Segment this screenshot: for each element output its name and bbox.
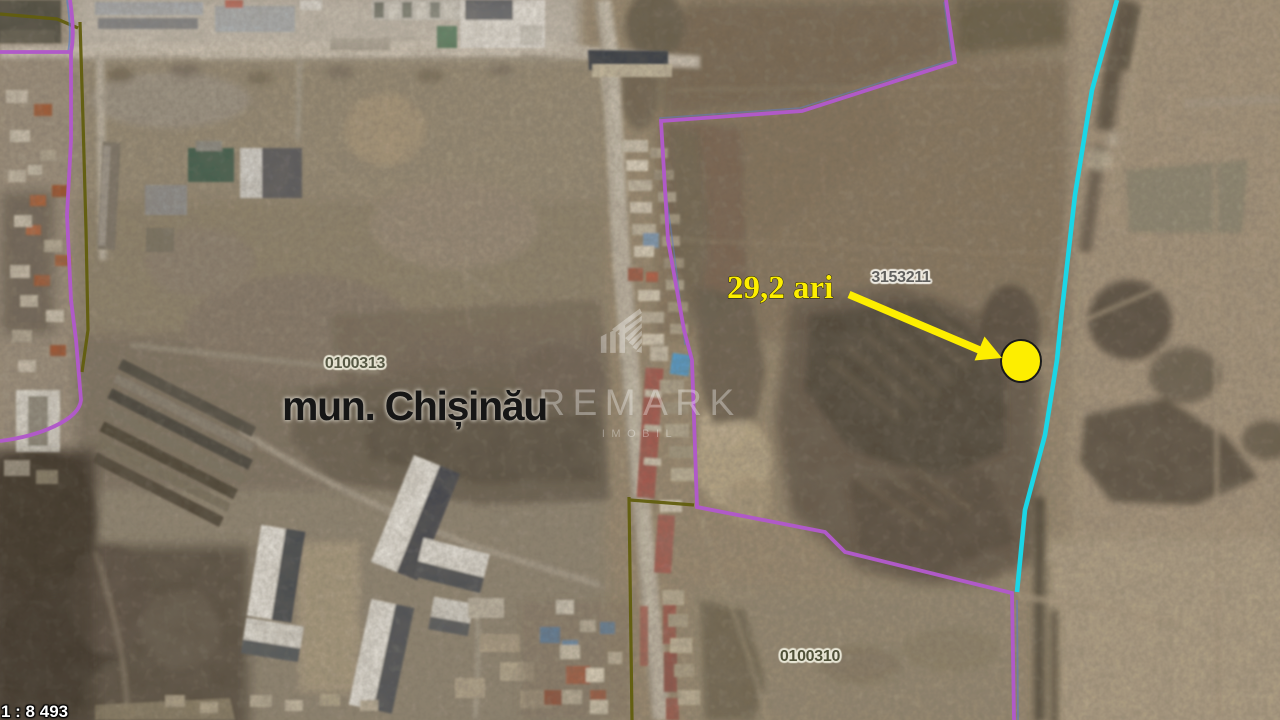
svg-text:0100313: 0100313 [325, 355, 386, 372]
svg-text:REMARK: REMARK [538, 382, 741, 423]
svg-text:29,2 ari: 29,2 ari [727, 270, 833, 306]
svg-text:mun. Chișinău: mun. Chișinău [282, 383, 547, 429]
svg-text:IMOBIL: IMOBIL [602, 428, 678, 440]
svg-text:3153211: 3153211 [871, 269, 931, 286]
svg-text:0100310: 0100310 [780, 648, 841, 665]
svg-text:1 : 8 493: 1 : 8 493 [1, 702, 68, 720]
